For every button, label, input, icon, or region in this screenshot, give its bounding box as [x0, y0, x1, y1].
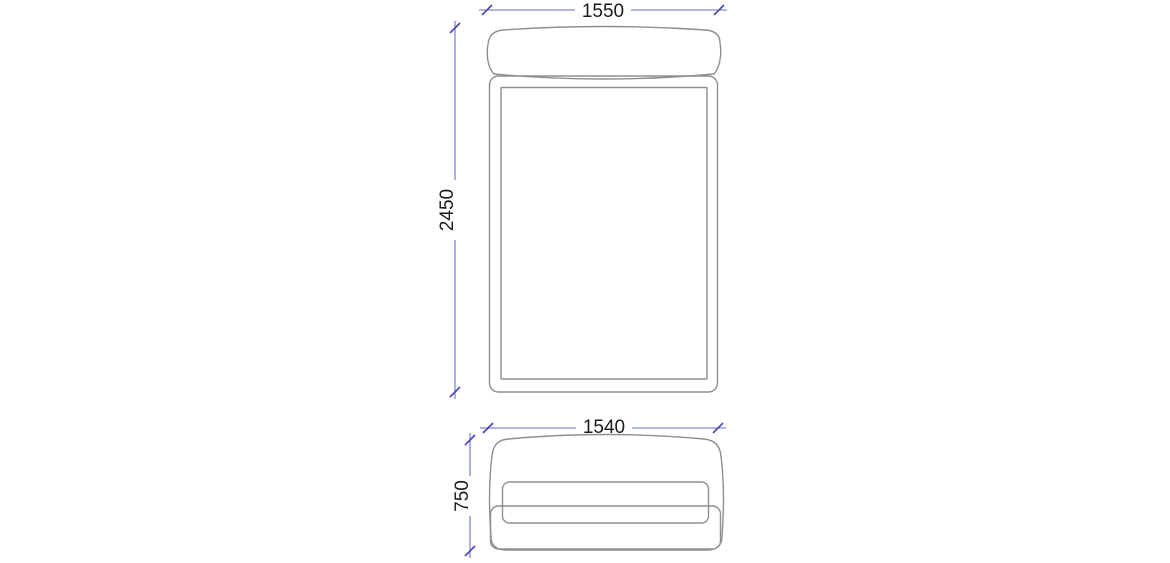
dimension-label-top-length: 2450 — [437, 189, 458, 231]
technical-drawing-page: 1550 2450 1540 — [0, 0, 1170, 563]
dimension-label-front-height: 750 — [452, 480, 473, 512]
top-view — [487, 27, 721, 393]
dimension-front-height: 750 — [452, 433, 475, 558]
dimension-top-length: 2450 — [437, 21, 460, 399]
base-frame-outline — [491, 506, 721, 549]
front-view — [490, 435, 724, 551]
side-rail-outline — [503, 482, 709, 523]
dimension-label-top-width: 1550 — [582, 1, 624, 22]
headboard-pillow-outline — [487, 27, 721, 80]
dimension-label-front-width: 1540 — [583, 417, 625, 438]
bed-frame-outline — [490, 76, 718, 392]
mattress-area-outline — [501, 88, 707, 380]
dimension-front-width: 1540 — [480, 417, 726, 438]
technical-drawing-canvas: 1550 2450 1540 — [0, 0, 1170, 563]
dimension-top-width: 1550 — [479, 1, 727, 22]
headboard-front-outline — [490, 435, 724, 551]
